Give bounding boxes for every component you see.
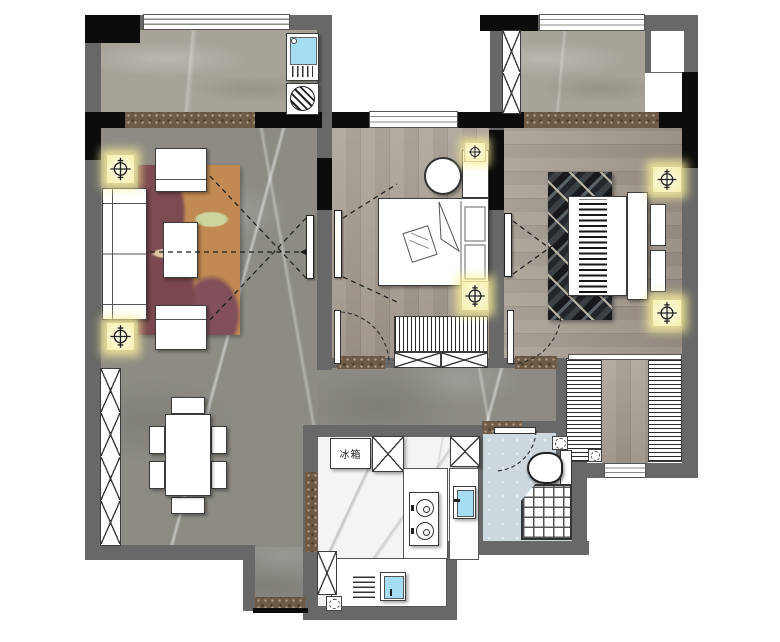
- entry-door-threshold: [255, 597, 305, 608]
- column-bedroom2-window-left: [332, 112, 369, 128]
- cabinet-x-cell: [101, 501, 120, 544]
- ceiling-light-master-top: [652, 166, 682, 193]
- master-door-leaf: [507, 310, 514, 364]
- master-door-threshold: [515, 356, 557, 369]
- closet-stool: [588, 449, 602, 462]
- column-between-bedrooms: [456, 112, 526, 128]
- stove-burner: [416, 499, 434, 517]
- dining-chair: [171, 397, 205, 414]
- column-bedroom2-master-wall: [489, 130, 504, 210]
- wardrobe-base-cell: [394, 352, 441, 368]
- washbasin-bowl: [457, 490, 474, 517]
- wall-bottom-left: [85, 545, 255, 560]
- toilet-bowl: [527, 452, 563, 484]
- balcony-top-right-floor: [503, 30, 645, 114]
- ceiling-light-living-2: [106, 322, 135, 351]
- dining-chair: [171, 497, 205, 514]
- ceiling-light-bedroom2-top: [464, 142, 486, 162]
- bed-linen-detail: [379, 199, 490, 287]
- bed-master-pillow: [650, 250, 666, 292]
- kitchen-floor-drain: [326, 596, 342, 611]
- refrigerator: 冰箱: [330, 438, 371, 469]
- kitchen-tall-cabinet: [372, 436, 404, 472]
- balcony1-sliding-door-threshold: [125, 112, 255, 128]
- cabinet-x-cell: [101, 457, 120, 500]
- wardrobe-second-bedroom: [394, 316, 488, 352]
- window-balcony2: [539, 14, 645, 31]
- column-living-bedroom2-wall: [317, 158, 332, 210]
- window-closet: [604, 463, 646, 478]
- bed-master-pillow: [650, 204, 666, 246]
- window-balcony1: [143, 14, 290, 30]
- balcony2-cabinet: [502, 30, 521, 114]
- column-under-balcony1: [101, 112, 125, 128]
- cabinet-x-cell: [101, 413, 120, 456]
- coffee-table: [163, 222, 198, 278]
- washing-machine-drum: [290, 86, 315, 111]
- column-under-balcony2-right: [656, 112, 684, 128]
- column-right-wall: [682, 72, 698, 168]
- ceiling-light-master-bottom: [652, 299, 682, 327]
- laundry-sink: [286, 33, 319, 81]
- tv-living-room: [306, 215, 314, 279]
- faucet-dot: [291, 38, 297, 44]
- refrigerator-label: 冰箱: [331, 439, 370, 468]
- wall-left: [85, 15, 101, 560]
- wall-vestibule-left: [243, 545, 255, 611]
- entry-vestibule-floor: [255, 547, 303, 599]
- tv-second-bedroom: [334, 210, 342, 278]
- wall-kitchen-right-step: [447, 555, 457, 620]
- toilet: [527, 450, 572, 487]
- kitchen-low-cabinet: [317, 551, 337, 595]
- bed-master-blanket: [568, 196, 627, 296]
- stove-burner: [416, 522, 434, 540]
- dining-chair: [211, 461, 227, 489]
- closet-floor: [602, 358, 648, 463]
- blanket-stripes: [579, 199, 607, 293]
- laundry-sink-drainer: [292, 66, 313, 77]
- cabinet-x-cell: [101, 369, 120, 412]
- washbasin: [453, 486, 476, 519]
- window-bedroom2: [369, 111, 458, 128]
- entry-door-stop: [253, 608, 308, 613]
- bathroom-door-leaf: [494, 427, 536, 434]
- tv-master-bedroom: [504, 213, 512, 277]
- dining-chair: [149, 426, 165, 454]
- bed-master-runner: [627, 192, 648, 300]
- closet-wardrobe-right: [648, 358, 682, 462]
- stove-knob: [411, 505, 414, 511]
- washing-machine: [286, 83, 319, 115]
- dining-cabinet: [100, 368, 121, 546]
- gas-stove: [409, 492, 439, 546]
- column-top-left: [85, 15, 140, 43]
- faucet-dot: [454, 499, 460, 502]
- column-left-mid: [85, 112, 101, 160]
- cabinet-x-cell: [503, 31, 520, 72]
- cabinet-x-cell: [503, 73, 520, 113]
- closet-wardrobe-left: [566, 358, 602, 462]
- balcony2-sliding-door-threshold: [524, 112, 659, 128]
- wardrobe-base-cell: [441, 352, 488, 368]
- bed-second-bedroom: [378, 198, 489, 286]
- dish-rack: [353, 576, 375, 598]
- sofa: [102, 188, 147, 320]
- hallway-floor: [318, 368, 557, 425]
- stove-knob: [411, 528, 414, 534]
- bathroom-floor-drain: [552, 436, 568, 450]
- kitchen-sink: [380, 572, 406, 601]
- washbasin-cabinet: [450, 436, 480, 467]
- faucet-dot: [390, 589, 396, 596]
- corner-shower: [521, 484, 572, 540]
- round-side-table: [424, 157, 462, 195]
- dining-table: [165, 414, 211, 496]
- closet-sliding-track: [568, 354, 682, 360]
- duct-shaft-opening: [651, 31, 684, 72]
- floor-plan: 冰箱: [0, 0, 780, 642]
- bedroom2-door-threshold: [337, 356, 385, 369]
- column-balcony2-topleft: [480, 15, 538, 31]
- bedroom2-door-leaf: [334, 310, 341, 364]
- armchair: [155, 148, 207, 192]
- ceiling-light-living-1: [106, 154, 135, 184]
- dining-chair: [211, 426, 227, 454]
- ceiling-light-bedroom2-bottom: [461, 281, 489, 311]
- kitchen-sliding-door-threshold: [305, 472, 318, 552]
- armchair: [155, 305, 207, 350]
- dining-chair: [149, 461, 165, 489]
